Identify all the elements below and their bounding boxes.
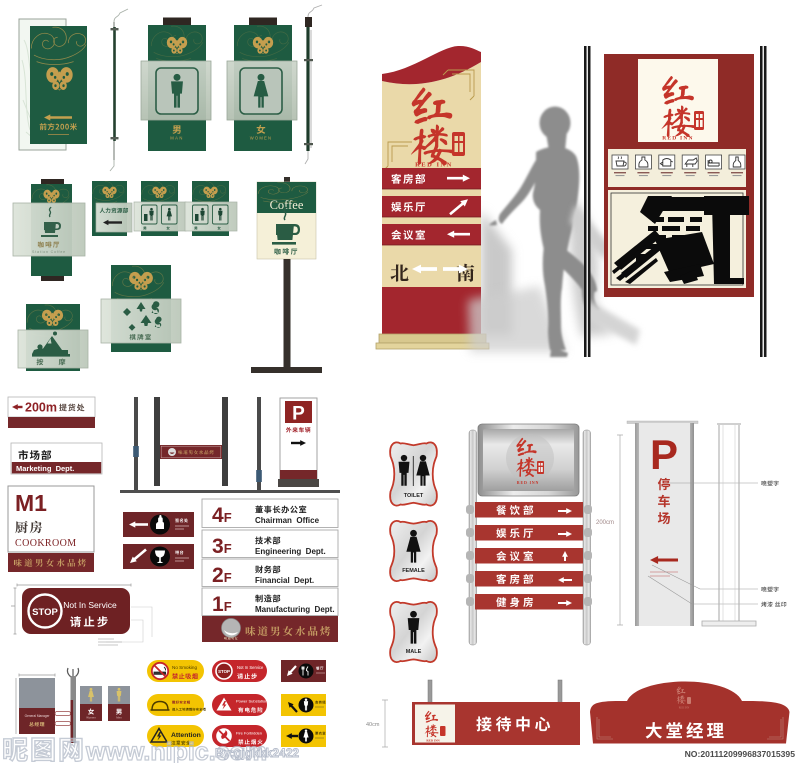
svg-text:Not In Service: Not In Service [237, 665, 264, 670]
svg-text:Coffee: Coffee [270, 198, 304, 212]
svg-text:Power Substation: Power Substation [236, 699, 267, 704]
svg-text:Marketing Dept.: Marketing Dept. [16, 464, 74, 473]
svg-text:RED INN: RED INN [679, 707, 690, 710]
svg-text:No Smoking: No Smoking [172, 665, 197, 670]
svg-text:Not In Service: Not In Service [63, 600, 117, 610]
svg-text:Women: Women [86, 716, 96, 720]
svg-text:FEMALE: FEMALE [402, 568, 425, 574]
svg-text:RED INN: RED INN [415, 162, 453, 169]
svg-text:MAN: MAN [170, 136, 184, 141]
svg-text:STOP: STOP [32, 607, 58, 618]
svg-text:General Manager: General Manager [25, 714, 51, 718]
svg-text:RED INN: RED INN [426, 739, 440, 743]
svg-text:By:gjgkkk2422: By:gjgkkk2422 [215, 746, 299, 760]
svg-text:Financial Dept.: Financial Dept. [255, 576, 314, 585]
svg-text:TOILET: TOILET [404, 493, 424, 499]
svg-text:RED INN: RED INN [662, 136, 693, 142]
svg-text:Fire Forbidden: Fire Forbidden [236, 731, 262, 736]
svg-text:COOKROOM: COOKROOM [15, 538, 77, 549]
svg-text:200cm: 200cm [596, 520, 614, 526]
svg-text:Station Coffee: Station Coffee [32, 250, 66, 254]
svg-text:MALE: MALE [406, 649, 422, 655]
svg-text:P: P [292, 404, 305, 425]
svg-text:STOP: STOP [218, 669, 230, 674]
svg-text:40cm: 40cm [366, 722, 380, 728]
svg-text:200m: 200m [25, 401, 57, 415]
svg-text:P: P [650, 431, 678, 478]
svg-text:Manufacturing Dept.: Manufacturing Dept. [255, 605, 335, 614]
svg-text:M1: M1 [15, 490, 47, 516]
svg-text:WOMEN: WOMEN [250, 136, 273, 141]
svg-text:NO:20111209996837015395: NO:20111209996837015395 [685, 749, 796, 759]
svg-text:Men: Men [116, 716, 122, 720]
svg-text:Engineering Dept.: Engineering Dept. [255, 547, 326, 556]
svg-text:Chairman Office: Chairman Office [255, 516, 320, 525]
svg-text:RED INN: RED INN [517, 480, 539, 485]
